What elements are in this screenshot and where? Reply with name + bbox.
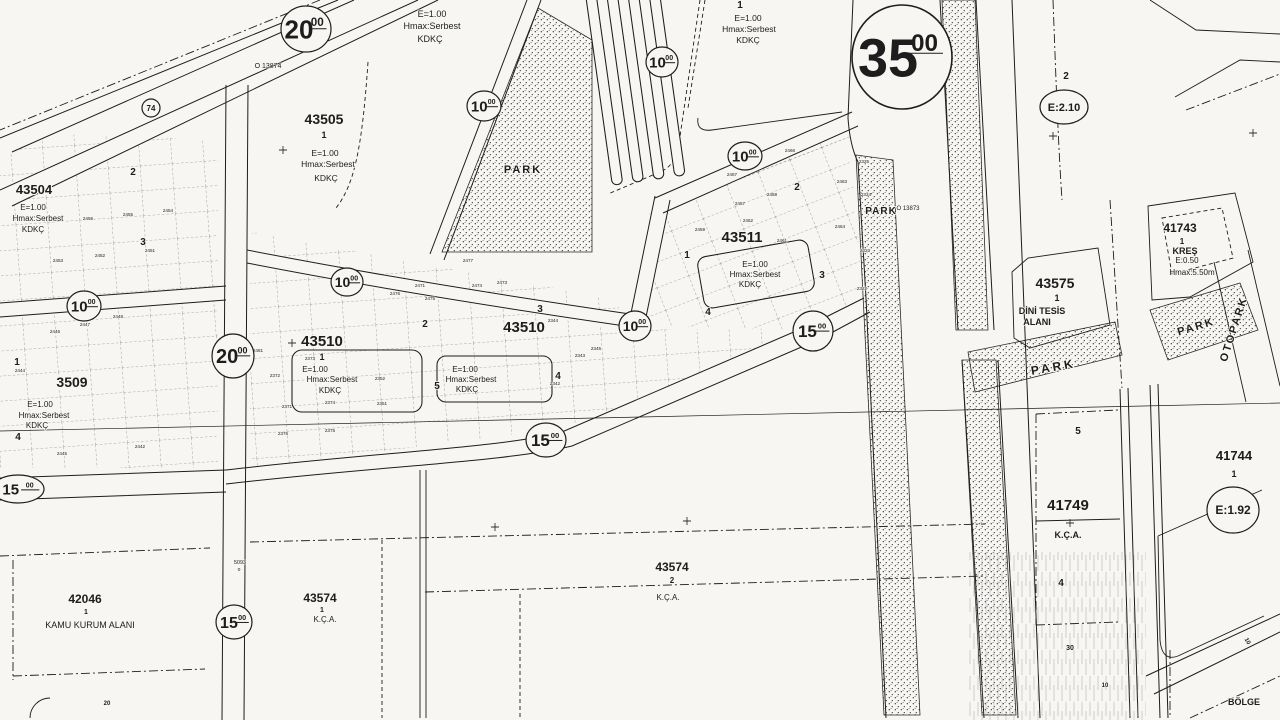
map-label: E=1.00 (311, 148, 338, 158)
parcel-number: 2477 (463, 258, 474, 263)
parcel-number: 2457 (735, 201, 746, 206)
parcel-number: 2444 (15, 368, 26, 373)
sub-block-number: 4 (15, 432, 21, 443)
map-label: PARK (865, 206, 897, 217)
road-width-value: 15 (531, 431, 550, 450)
parcel-number: 2467 (727, 172, 738, 177)
parcel-number: 2323 (860, 248, 871, 253)
road-width-decimals: 00 (638, 319, 646, 326)
parcel-number: 2462 (743, 218, 754, 223)
map-label: 5093 (234, 560, 246, 566)
sub-block-number: 20 (104, 701, 111, 707)
map-label: 43574 (303, 591, 337, 605)
map-label: E=1.00 (20, 203, 46, 212)
map-label: 43575 (1036, 275, 1075, 291)
parcel-number: 2371 (282, 404, 293, 409)
parcel-number: 2442 (135, 444, 146, 449)
road-width-decimals: 00 (551, 431, 560, 440)
map-label: Hmax:Serbest (13, 214, 64, 223)
parcel-number: 2351 (377, 401, 388, 406)
road-width-decimals: 00 (665, 55, 673, 62)
sub-block-number: 3 (537, 304, 543, 315)
map-label: E=1.00 (742, 260, 768, 269)
parcel-number: 2476 (390, 291, 401, 296)
sub-block-number: 4 (1058, 578, 1064, 589)
road-width-decimals: 00 (488, 99, 496, 106)
sub-block-number: 10 (1102, 683, 1109, 689)
road-width-value: 20 (285, 14, 314, 44)
parcel-number: 2344 (548, 318, 559, 323)
road-width-decimals: 00 (818, 322, 827, 331)
map-label: 2 (1063, 71, 1069, 82)
road-width-value: 10 (335, 274, 351, 290)
road-width-circle: 1000 (331, 268, 363, 296)
map-label: E=1.00 (734, 13, 761, 23)
map-label: KDKÇ (736, 35, 760, 45)
parcel-number: 2463 (837, 179, 848, 184)
parcel-number: 2345 (591, 346, 602, 351)
road-width-circle: 1500 (216, 605, 252, 639)
map-label: 43504 (16, 182, 53, 197)
parcel-number: 2375 (325, 428, 336, 433)
sub-block-number: 4 (555, 371, 561, 382)
sub-block-number: 1 (14, 357, 20, 368)
parcel-number: 2466 (785, 148, 796, 153)
parcel-number: 2454 (163, 208, 174, 213)
road-width-decimals: 00 (26, 482, 34, 489)
map-label: Hmax:Serbest (19, 411, 70, 420)
map-label: 3509 (56, 374, 87, 390)
map-label: KREŞ (1172, 246, 1197, 256)
parcel-number: 2376 (278, 431, 289, 436)
road-width-circle: 1000 (728, 142, 762, 170)
map-label: E:0.50 (1175, 256, 1199, 265)
parcel-number: 2343 (575, 353, 586, 358)
sub-block-number: 30 (1066, 645, 1074, 652)
map-label: E=1.00 (27, 400, 53, 409)
road-width-value: 15 (2, 481, 19, 498)
map-label: K.Ç.A. (1055, 530, 1082, 540)
map-label: Hmax:Serbest (446, 375, 497, 384)
road-width-value: 15 (798, 322, 817, 341)
parcel-number: 2481 (253, 348, 264, 353)
road-width-circle: 1000 (619, 311, 651, 341)
map-label: 1 (1231, 469, 1236, 479)
map-label: 43505 (305, 111, 344, 127)
parcel-number: 2453 (53, 258, 64, 263)
map-label: KDKÇ (417, 34, 443, 44)
map-label: KDKÇ (456, 385, 478, 394)
map-label: Hmax:Serbest (730, 270, 781, 279)
parcel-number: 2451 (145, 248, 156, 253)
map-label: 1 (1180, 237, 1185, 246)
map-label: DİNİ TESİS (1019, 306, 1066, 316)
road-width-circle: 1000 (467, 91, 501, 121)
map-label: 43510 (301, 333, 343, 350)
map-label: E=1.00 (302, 365, 328, 374)
road-width-value: 35 (858, 28, 918, 88)
map-label: E=1.00 (452, 365, 478, 374)
zoning-map-sheet: 2444244624472448245124522453245424552456… (0, 0, 1280, 720)
map-label: O 13873 (896, 206, 920, 212)
parcel-number: 2473 (497, 280, 508, 285)
map-label: 1 (84, 609, 88, 616)
road-width-value: 74 (147, 104, 156, 113)
road-width-value: E:2.10 (1048, 102, 1080, 114)
map-label: 1 (1054, 293, 1059, 303)
road-width-circle: 2000 (281, 6, 331, 52)
map-label: 42046 (68, 592, 102, 606)
map-label: 1 (319, 352, 324, 362)
sub-block-number: 1 (684, 250, 690, 261)
map-label: Hmax:5.50m (1169, 268, 1215, 277)
map-label: 43510 (503, 319, 545, 336)
map-label: Hmax:Serbest (722, 24, 776, 34)
road-width-decimals: 00 (238, 613, 246, 622)
parcel-number: 2325 (859, 159, 870, 164)
map-label: E=1.00 (418, 9, 447, 19)
map-label: KDKÇ (22, 225, 44, 234)
map-label: K.Ç.A. (656, 593, 679, 602)
parcel-number: 2474 (472, 283, 483, 288)
map-label: 1 (320, 607, 324, 614)
map-label: ALANI (1023, 317, 1051, 327)
parcel-number: 2452 (95, 253, 106, 258)
road-width-decimals: 00 (88, 299, 96, 306)
map-label: KDKÇ (314, 173, 338, 183)
parcel-number: 2322 (857, 286, 868, 291)
map-label: Hmax:Serbest (307, 375, 358, 384)
parcel-number: 2464 (835, 224, 846, 229)
road-width-circle: E:2.10 (1040, 90, 1088, 124)
map-label: 43511 (722, 229, 763, 246)
sub-block-number: 5 (1075, 426, 1081, 437)
map-label: PARK (504, 164, 542, 176)
map-label: 41744 (1216, 448, 1253, 463)
scan-noise (968, 552, 1146, 720)
parcel-number: 2456 (83, 216, 94, 221)
road-width-decimals: 00 (911, 30, 938, 57)
parcel-number: 2446 (50, 329, 61, 334)
map-label: o (238, 567, 241, 573)
road-width-circle: 3500 (852, 5, 952, 109)
road-width-circle: 2000 (212, 334, 254, 378)
road-width-value: 10 (471, 98, 488, 115)
map-label: KDKÇ (319, 386, 341, 395)
road-width-value: 20 (216, 346, 238, 368)
sub-block-number: 2 (794, 182, 800, 193)
road-width-value: 10 (649, 54, 666, 71)
road-width-decimals: 00 (749, 149, 757, 156)
road-width-circle: 1500 (793, 311, 833, 351)
sub-block-number: 2 (130, 167, 136, 178)
zoning-map: 2444244624472448245124522453245424552456… (0, 0, 1280, 720)
parcel-number: 2352 (375, 376, 386, 381)
road-width-circle: 1000 (67, 291, 101, 321)
parcel-number: 2459 (695, 227, 706, 232)
road-width-value: 10 (732, 148, 749, 165)
road-width-value: 10 (623, 318, 639, 334)
sub-block-number: 1 (737, 0, 743, 11)
parcel-number: 2374 (325, 400, 336, 405)
map-label: KDKÇ (26, 421, 48, 430)
map-label: 1 (321, 130, 326, 140)
road-width-value: E:1.92 (1215, 503, 1251, 517)
road-width-value: 10 (71, 298, 88, 315)
map-label: 41743 (1163, 221, 1197, 235)
road-width-circle: 1000 (646, 47, 678, 77)
parcel-number: 2448 (113, 314, 124, 319)
road-width-decimals: 00 (350, 275, 358, 282)
road-width-circle: E:1.92 (1207, 487, 1259, 533)
parcel-number: 2447 (80, 322, 91, 327)
map-label: Hmax:Serbest (301, 159, 355, 169)
road-width-decimals: 00 (311, 16, 325, 29)
map-label: O 13874 (255, 63, 282, 70)
parcel-number: 2471 (415, 283, 426, 288)
map-label: KDKÇ (739, 280, 761, 289)
map-label: KAMU KURUM ALANI (45, 620, 135, 630)
road-width-circle: 1500 (526, 423, 566, 457)
sub-block-number: 5 (434, 381, 440, 392)
parcel-number: 2475 (425, 296, 436, 301)
parcel-number: 2455 (123, 212, 134, 217)
map-label: 2 (670, 576, 675, 585)
parcel-number: 2458 (767, 192, 778, 197)
map-label: 43574 (655, 560, 689, 574)
parcel-number: 2324 (861, 192, 872, 197)
parcel-number: 2373 (305, 356, 316, 361)
parcel-number: 2461 (777, 238, 788, 243)
sub-block-number: 2 (422, 319, 428, 330)
sub-block-number: 3 (140, 237, 146, 248)
map-label: 41749 (1047, 497, 1089, 514)
map-label: BÖLGE (1228, 697, 1260, 707)
road-width-circle: 74 (142, 99, 160, 117)
road-width-value: 15 (220, 615, 238, 632)
sub-block-number: 3 (819, 270, 825, 281)
road-width-circle: 1500 (0, 475, 44, 503)
sub-block-number: 4 (705, 307, 711, 318)
parcel-number: 2445 (57, 451, 68, 456)
parcel-number: 2372 (270, 373, 281, 378)
road-width-decimals: 00 (237, 345, 247, 355)
map-label: Hmax:Serbest (403, 21, 461, 31)
map-label: K.Ç.A. (313, 615, 336, 624)
